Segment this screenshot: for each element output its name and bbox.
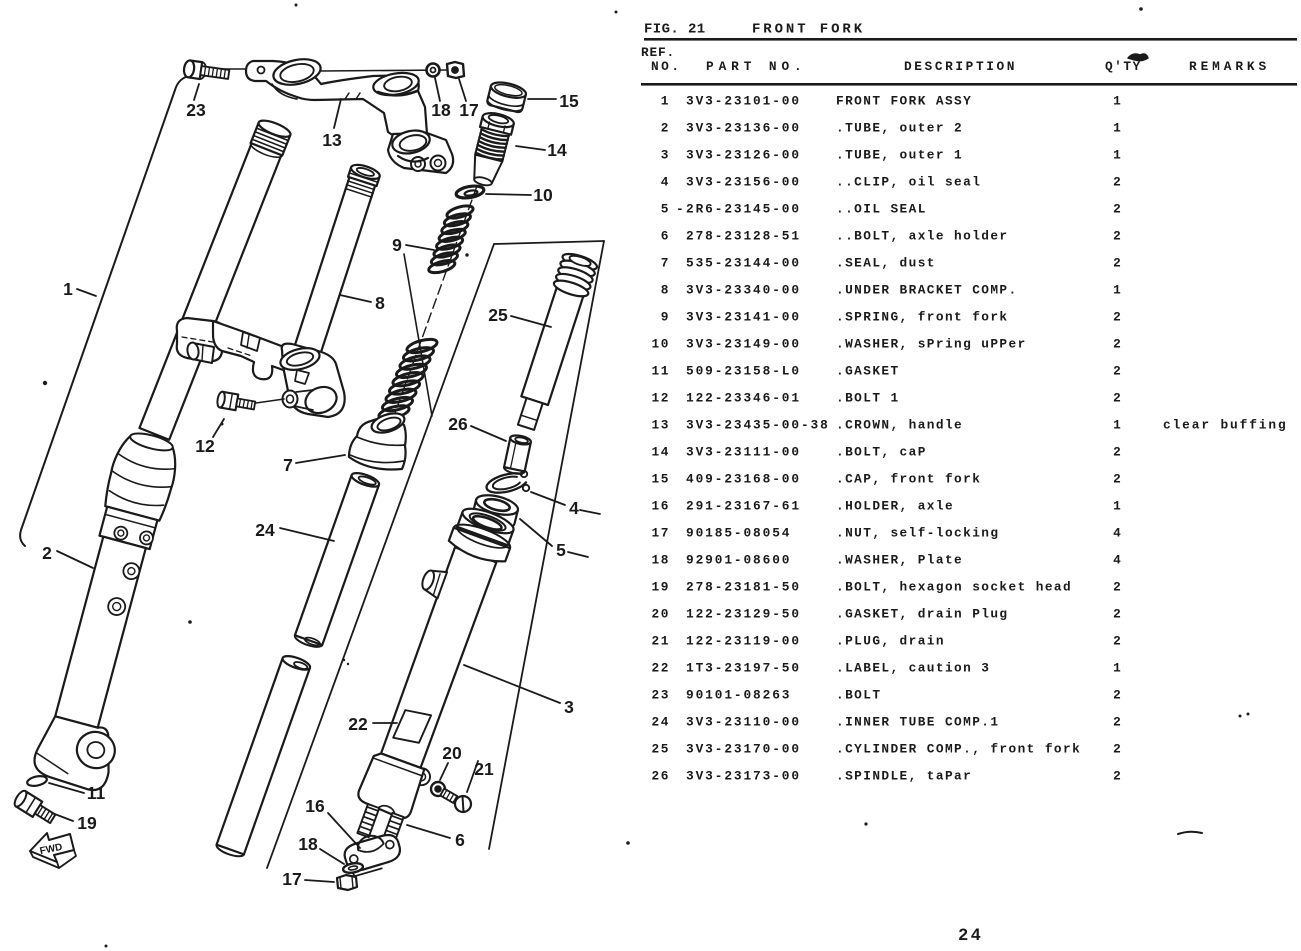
svg-text:122-23346-01: 122-23346-01 [686,391,801,406]
svg-text:3V3-23110-00: 3V3-23110-00 [686,715,801,730]
svg-text:.BOLT: .BOLT [836,688,881,703]
svg-text:3V3-23111-00: 3V3-23111-00 [686,445,801,460]
svg-text:2: 2 [661,121,670,136]
svg-text:3V3-23170-00: 3V3-23170-00 [686,742,801,757]
svg-text:2: 2 [1113,472,1121,487]
svg-text:14: 14 [651,445,670,460]
svg-text:13: 13 [651,418,670,433]
svg-text:.UNDER BRACKET COMP.: .UNDER BRACKET COMP. [836,283,1018,298]
svg-text:25: 25 [651,742,670,757]
svg-text:16: 16 [651,499,670,514]
svg-text:PART NO.: PART NO. [706,59,807,74]
svg-text:12: 12 [651,391,670,406]
svg-text:21: 21 [651,634,670,649]
svg-text:26: 26 [651,769,670,784]
svg-text:.GASKET: .GASKET [836,364,900,379]
svg-text:3V3-23136-00: 3V3-23136-00 [686,121,801,136]
svg-text:clear buffing: clear buffing [1163,418,1288,433]
svg-text:.WASHER, sPring uPPer: .WASHER, sPring uPPer [836,337,1027,352]
svg-text:2: 2 [1113,175,1121,190]
svg-text:2: 2 [1113,445,1121,460]
svg-text:FRONT FORK: FRONT FORK [752,22,865,38]
svg-text:3V3-23126-00: 3V3-23126-00 [686,148,801,163]
svg-text:.PLUG, drain: .PLUG, drain [836,634,945,649]
svg-text:15: 15 [651,472,670,487]
svg-text:.BOLT, caP: .BOLT, caP [836,445,927,460]
svg-text:278-23181-50: 278-23181-50 [686,580,801,595]
svg-text:NO.: NO. [651,59,682,74]
svg-text:17: 17 [651,526,670,541]
svg-text:.SPINDLE, taPar: .SPINDLE, taPar [836,769,972,784]
svg-text:19: 19 [651,580,670,595]
svg-text:7: 7 [661,256,670,271]
svg-text:2: 2 [1113,634,1121,649]
svg-text:1: 1 [1113,94,1121,109]
svg-text:535-23144-00: 535-23144-00 [686,256,801,271]
svg-text:8: 8 [661,283,670,298]
svg-text:291-23167-61: 291-23167-61 [686,499,801,514]
svg-text:.INNER TUBE COMP.1: .INNER TUBE COMP.1 [836,715,999,730]
svg-text:1T3-23197-50: 1T3-23197-50 [686,661,801,676]
svg-text:2: 2 [1113,229,1121,244]
svg-text:3V3-23101-00: 3V3-23101-00 [686,94,801,109]
svg-text:..BOLT, axle holder: ..BOLT, axle holder [836,229,1009,244]
svg-text:9: 9 [661,310,670,325]
svg-text:11: 11 [651,364,670,379]
svg-text:.TUBE, outer 2: .TUBE, outer 2 [836,121,963,136]
svg-text:24: 24 [959,925,984,944]
svg-text:FRONT FORK ASSY: FRONT FORK ASSY [836,94,972,109]
svg-text:18: 18 [651,553,670,568]
svg-text:90185-08054: 90185-08054 [686,526,791,541]
svg-text:2: 2 [1113,742,1121,757]
svg-text:1: 1 [1113,499,1121,514]
svg-text:509-23158-L0: 509-23158-L0 [686,364,801,379]
svg-text:6: 6 [661,229,670,244]
svg-text:1: 1 [661,94,670,109]
svg-text:FIG. 21: FIG. 21 [644,22,706,38]
svg-text:..OIL SEAL: ..OIL SEAL [836,202,927,217]
svg-text:.CYLINDER COMP., front fork: .CYLINDER COMP., front fork [836,742,1081,757]
svg-text:1: 1 [1113,148,1121,163]
svg-text:-: - [676,202,684,217]
svg-text:90101-08263: 90101-08263 [686,688,791,703]
svg-text:2: 2 [1113,202,1121,217]
svg-text:3V3-23173-00: 3V3-23173-00 [686,769,801,784]
svg-text:2: 2 [1113,580,1121,595]
svg-text:.NUT, self-locking: .NUT, self-locking [836,526,999,541]
svg-text:.LABEL, caution 3: .LABEL, caution 3 [836,661,990,676]
svg-text:3V3-23340-00: 3V3-23340-00 [686,283,801,298]
svg-text:4: 4 [1113,526,1121,541]
svg-text:2: 2 [1113,607,1121,622]
svg-text:.TUBE, outer 1: .TUBE, outer 1 [836,148,963,163]
svg-text:1: 1 [1113,283,1121,298]
svg-text:.SPRING, front fork: .SPRING, front fork [836,310,1009,325]
svg-text:2: 2 [1113,337,1121,352]
svg-text:2: 2 [1113,688,1121,703]
svg-text:3: 3 [661,148,670,163]
svg-text:122-23129-50: 122-23129-50 [686,607,801,622]
svg-text:23: 23 [651,688,670,703]
svg-text:1: 1 [1113,661,1121,676]
svg-text:.CROWN, handle: .CROWN, handle [836,418,963,433]
svg-text:409-23168-00: 409-23168-00 [686,472,801,487]
svg-text:2R6-23145-00: 2R6-23145-00 [686,202,801,217]
svg-text:.BOLT 1: .BOLT 1 [836,391,900,406]
svg-text:Q'TY: Q'TY [1105,59,1142,74]
svg-text:DESCRIPTION: DESCRIPTION [904,59,1017,74]
svg-text:4: 4 [1113,553,1121,568]
svg-text:2: 2 [1113,715,1121,730]
svg-text:.BOLT, hexagon socket head: .BOLT, hexagon socket head [836,580,1072,595]
svg-text:20: 20 [651,607,670,622]
svg-text:.CAP, front fork: .CAP, front fork [836,472,981,487]
svg-text:1: 1 [1113,121,1121,136]
svg-text:4: 4 [661,175,670,190]
svg-text:22: 22 [651,661,670,676]
svg-text:..CLIP, oil seal: ..CLIP, oil seal [836,175,981,190]
svg-text:2: 2 [1113,310,1121,325]
svg-text:3V3-23141-00: 3V3-23141-00 [686,310,801,325]
svg-text:.HOLDER, axle: .HOLDER, axle [836,499,954,514]
svg-text:.WASHER, Plate: .WASHER, Plate [836,553,963,568]
svg-text:122-23119-00: 122-23119-00 [686,634,801,649]
svg-text:3V3-23156-00: 3V3-23156-00 [686,175,801,190]
svg-text:1: 1 [1113,418,1121,433]
svg-text:REF.: REF. [641,45,675,60]
svg-text:2: 2 [1113,769,1121,784]
svg-text:REMARKS: REMARKS [1189,59,1270,74]
svg-text:278-23128-51: 278-23128-51 [686,229,801,244]
svg-text:24: 24 [651,715,670,730]
svg-text:2: 2 [1113,256,1121,271]
svg-text:5: 5 [661,202,670,217]
svg-text:3V3-23435-00-38: 3V3-23435-00-38 [686,418,830,433]
svg-text:2: 2 [1113,391,1121,406]
svg-text:.SEAL, dust: .SEAL, dust [836,256,936,271]
svg-text:2: 2 [1113,364,1121,379]
svg-text:.GASKET, drain Plug: .GASKET, drain Plug [836,607,1009,622]
svg-text:92901-08600: 92901-08600 [686,553,791,568]
svg-text:10: 10 [651,337,670,352]
svg-text:3V3-23149-00: 3V3-23149-00 [686,337,801,352]
